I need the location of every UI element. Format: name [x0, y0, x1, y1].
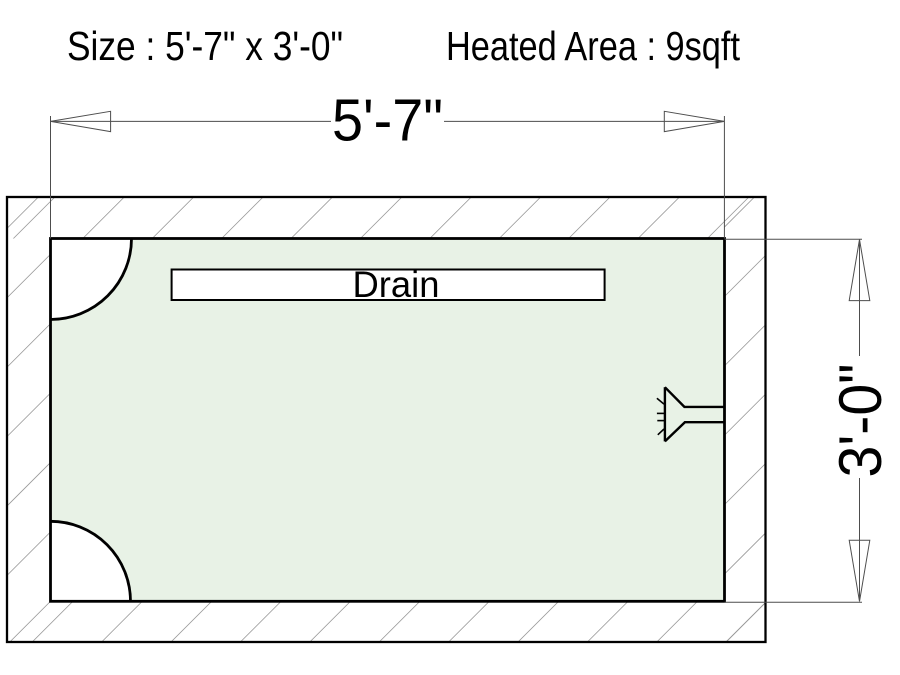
- svg-text:3'-0": 3'-0": [827, 364, 894, 478]
- svg-text:5'-7": 5'-7": [332, 88, 443, 154]
- svg-text:Drain: Drain: [353, 264, 440, 305]
- svg-text:Heated Area : 9sqft: Heated Area : 9sqft: [446, 23, 740, 69]
- svg-text:Size : 5'-7" x 3'-0": Size : 5'-7" x 3'-0": [67, 23, 343, 69]
